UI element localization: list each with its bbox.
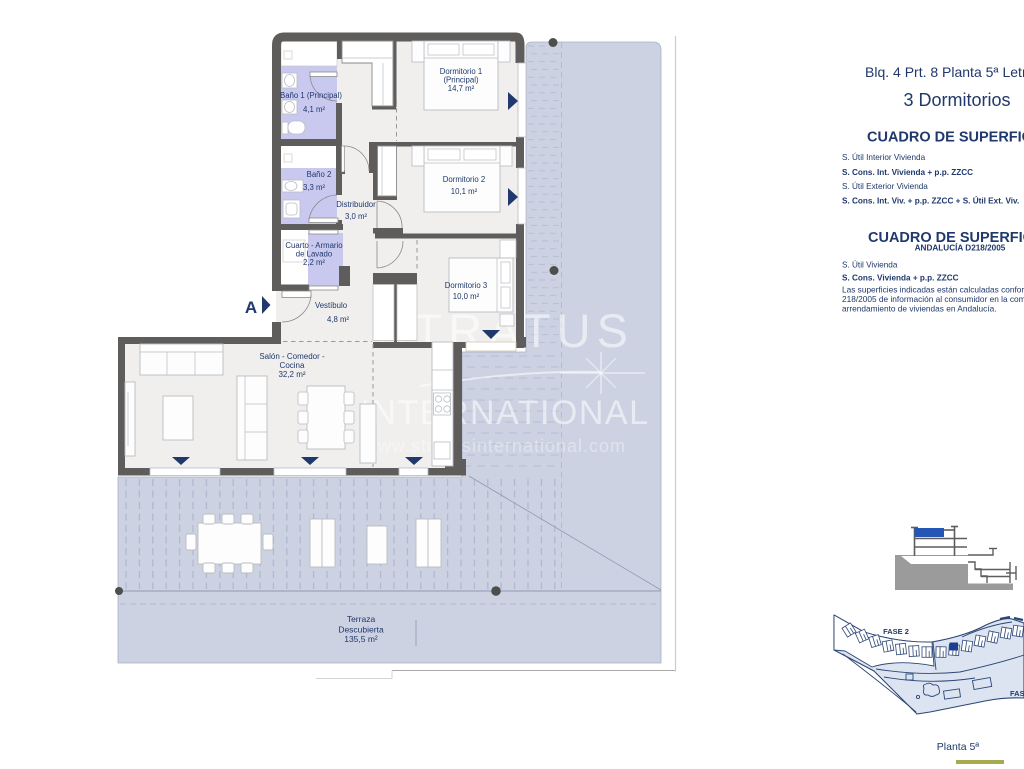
svg-text:S. Cons. Int. Vivienda + p.p.: S. Cons. Int. Vivienda + p.p. ZZCC bbox=[842, 168, 973, 177]
svg-text:10,1 m²: 10,1 m² bbox=[451, 187, 478, 196]
svg-text:Dormitorio 2: Dormitorio 2 bbox=[443, 175, 485, 184]
svg-text:FASE 1: FASE 1 bbox=[1010, 689, 1024, 698]
svg-text:Blq. 4 Prt. 8 Planta 5ª Letra: Blq. 4 Prt. 8 Planta 5ª Letra A bbox=[865, 64, 1024, 80]
svg-text:Baño 2: Baño 2 bbox=[307, 170, 332, 179]
svg-text:32,2 m²: 32,2 m² bbox=[278, 370, 305, 379]
svg-text:S. Útil Interior Vivienda: S. Útil Interior Vivienda bbox=[842, 152, 926, 162]
svg-text:3 Dormitorios: 3 Dormitorios bbox=[903, 90, 1010, 110]
svg-text:Cocina: Cocina bbox=[280, 361, 305, 370]
svg-text:14,7 m²: 14,7 m² bbox=[448, 84, 475, 93]
svg-text:4,8 m²: 4,8 m² bbox=[327, 315, 349, 324]
svg-text:ANDALUCÍA D218/2005: ANDALUCÍA D218/2005 bbox=[915, 243, 1006, 253]
svg-text:Terraza: Terraza bbox=[347, 614, 376, 624]
svg-text:CUADRO DE SUPERFICIES: CUADRO DE SUPERFICIES bbox=[867, 130, 1024, 146]
svg-text:10,0 m²: 10,0 m² bbox=[453, 292, 480, 301]
svg-text:S. Útil Vivienda: S. Útil Vivienda bbox=[842, 260, 898, 270]
svg-text:arrendamiento de viviendas en: arrendamiento de viviendas en Andalucía. bbox=[842, 304, 997, 314]
svg-text:Dormitorio 3: Dormitorio 3 bbox=[445, 281, 487, 290]
svg-text:Planta 5ª: Planta 5ª bbox=[937, 741, 980, 753]
svg-text:A: A bbox=[245, 298, 257, 317]
svg-text:3,0 m²: 3,0 m² bbox=[345, 212, 367, 221]
svg-text:2,2 m²: 2,2 m² bbox=[303, 258, 325, 267]
svg-text:S. Cons. Int. Viv. + p.p. ZZCC: S. Cons. Int. Viv. + p.p. ZZCC + S. Útil… bbox=[842, 195, 1019, 206]
svg-text:S. Útil Exterior Vivienda: S. Útil Exterior Vivienda bbox=[842, 181, 928, 191]
svg-text:INTERNATIONAL: INTERNATIONAL bbox=[360, 394, 649, 432]
svg-text:3,3 m²: 3,3 m² bbox=[303, 183, 325, 192]
svg-text:Vestíbulo: Vestíbulo bbox=[315, 301, 348, 310]
svg-text:Descubierta: Descubierta bbox=[338, 625, 384, 635]
svg-text:Baño 1 (Principal): Baño 1 (Principal) bbox=[280, 91, 342, 100]
svg-text:www.stratusinternational.com: www.stratusinternational.com bbox=[363, 436, 626, 456]
svg-text:FASE 2: FASE 2 bbox=[883, 627, 909, 636]
svg-text:4,1 m²: 4,1 m² bbox=[303, 105, 325, 114]
svg-text:135,5 m²: 135,5 m² bbox=[344, 634, 378, 644]
svg-text:Las superficies indicadas está: Las superficies indicadas están calculad… bbox=[842, 285, 1024, 295]
svg-text:Distribuidor: Distribuidor bbox=[336, 200, 376, 209]
svg-text:218/2005 de información al con: 218/2005 de información al consumidor en… bbox=[842, 294, 1024, 304]
svg-text:S. Cons. Vivienda + p.p. ZZCC: S. Cons. Vivienda + p.p. ZZCC bbox=[842, 274, 959, 283]
svg-text:Salón - Comedor -: Salón - Comedor - bbox=[259, 352, 325, 361]
